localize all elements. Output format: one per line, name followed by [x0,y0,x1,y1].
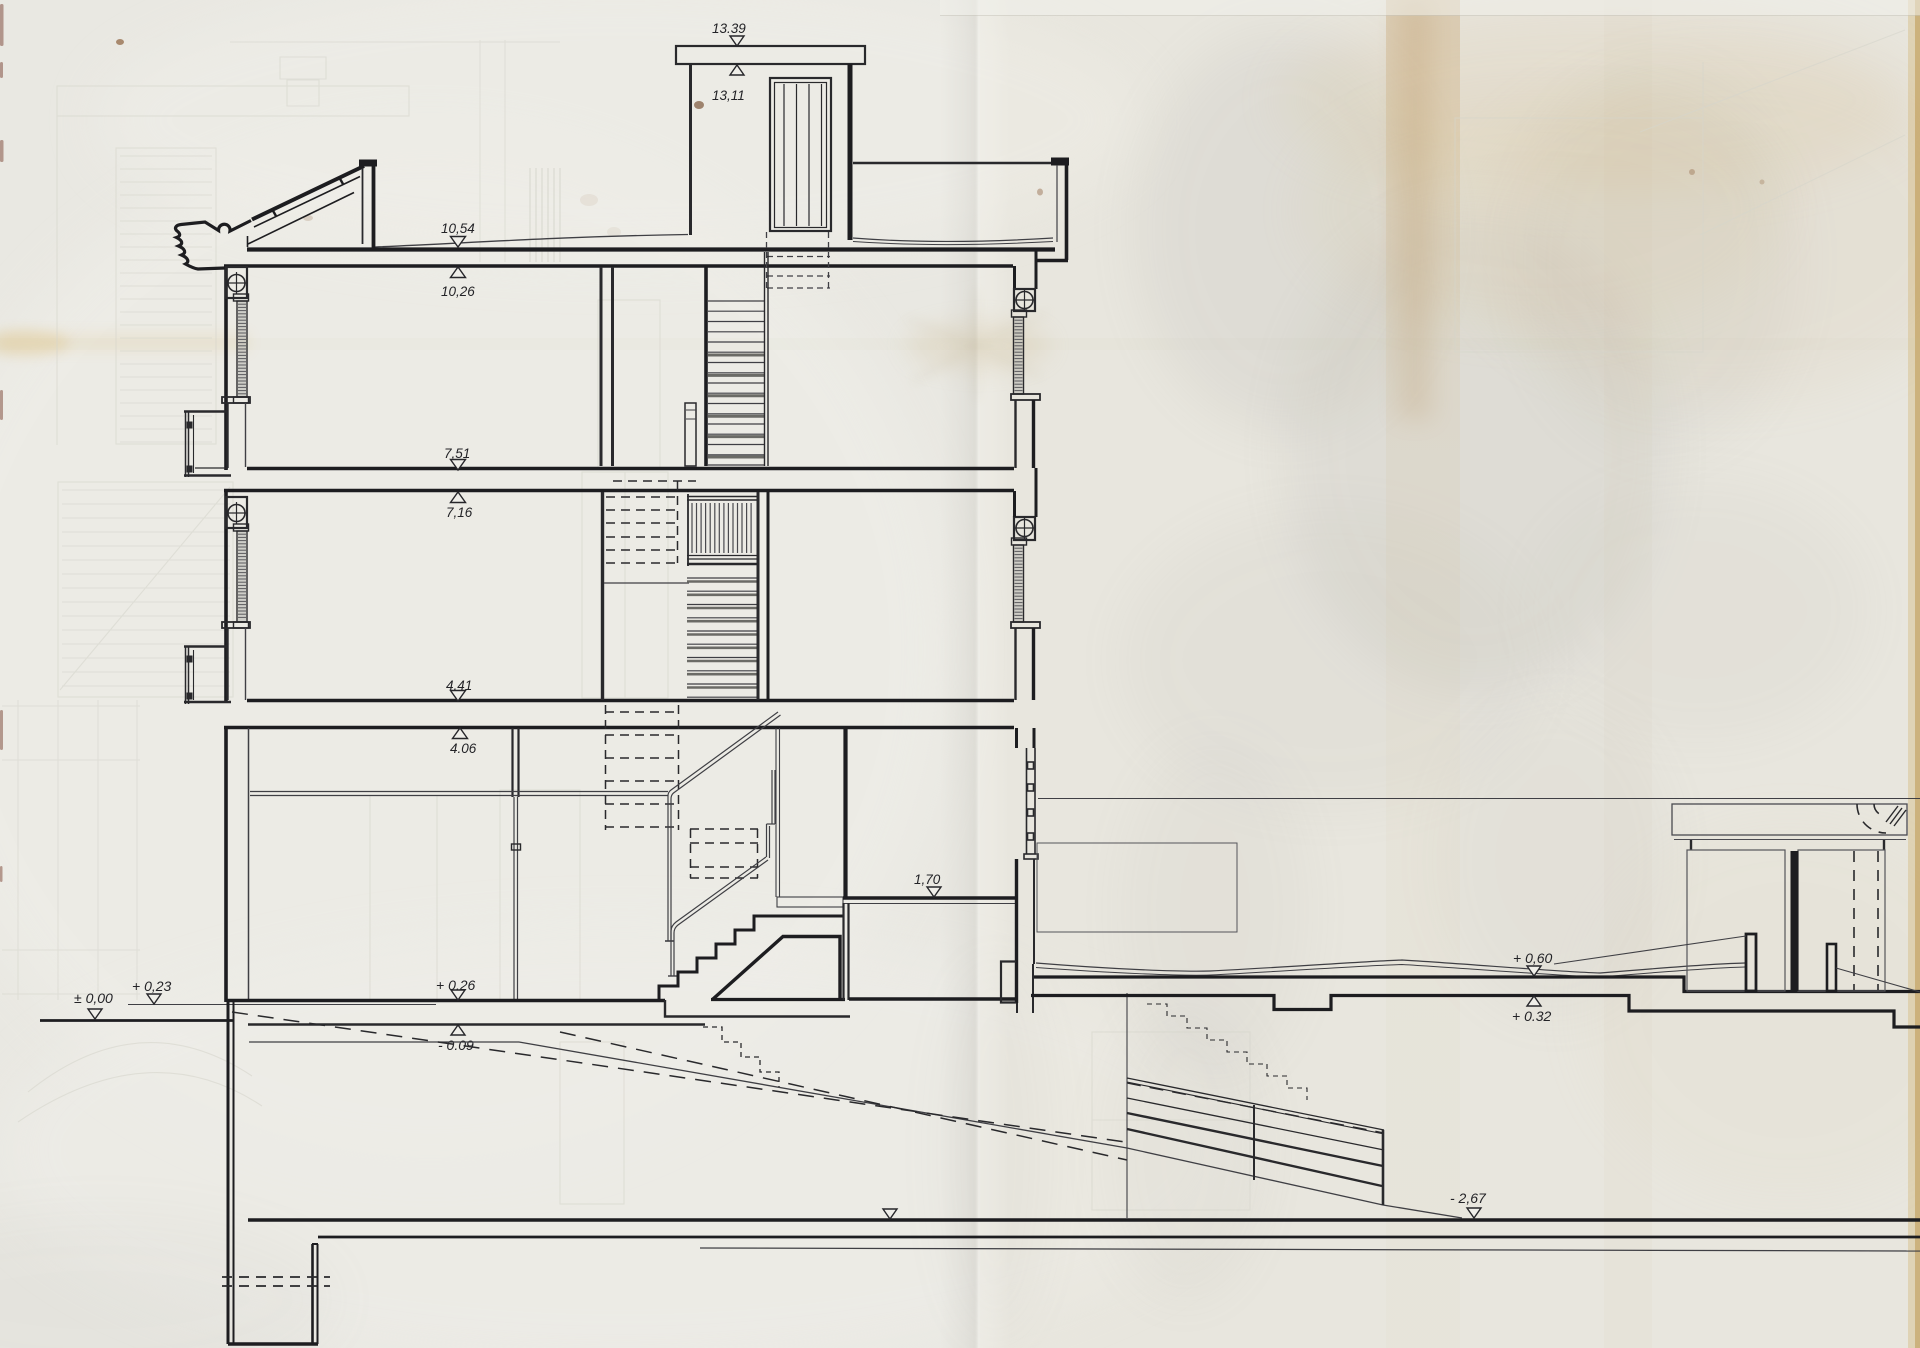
svg-text:13,11: 13,11 [712,88,745,103]
svg-text:13.39: 13.39 [712,21,746,36]
svg-text:4.06: 4.06 [450,741,477,756]
svg-text:7,16: 7,16 [446,505,473,520]
svg-text:+ 0,60: + 0,60 [1513,950,1553,966]
svg-text:10,54: 10,54 [441,221,475,236]
svg-text:- 2,67: - 2,67 [1450,1190,1487,1206]
svg-text:± 0,00: ± 0,00 [74,990,113,1006]
svg-text:- 0.09: - 0.09 [438,1037,474,1053]
svg-text:10,26: 10,26 [441,284,475,299]
svg-text:+ 0,23: + 0,23 [132,978,172,994]
svg-text:7,51: 7,51 [444,446,470,461]
svg-text:1,70: 1,70 [914,872,941,887]
svg-text:+ 0.32: + 0.32 [1512,1008,1552,1024]
